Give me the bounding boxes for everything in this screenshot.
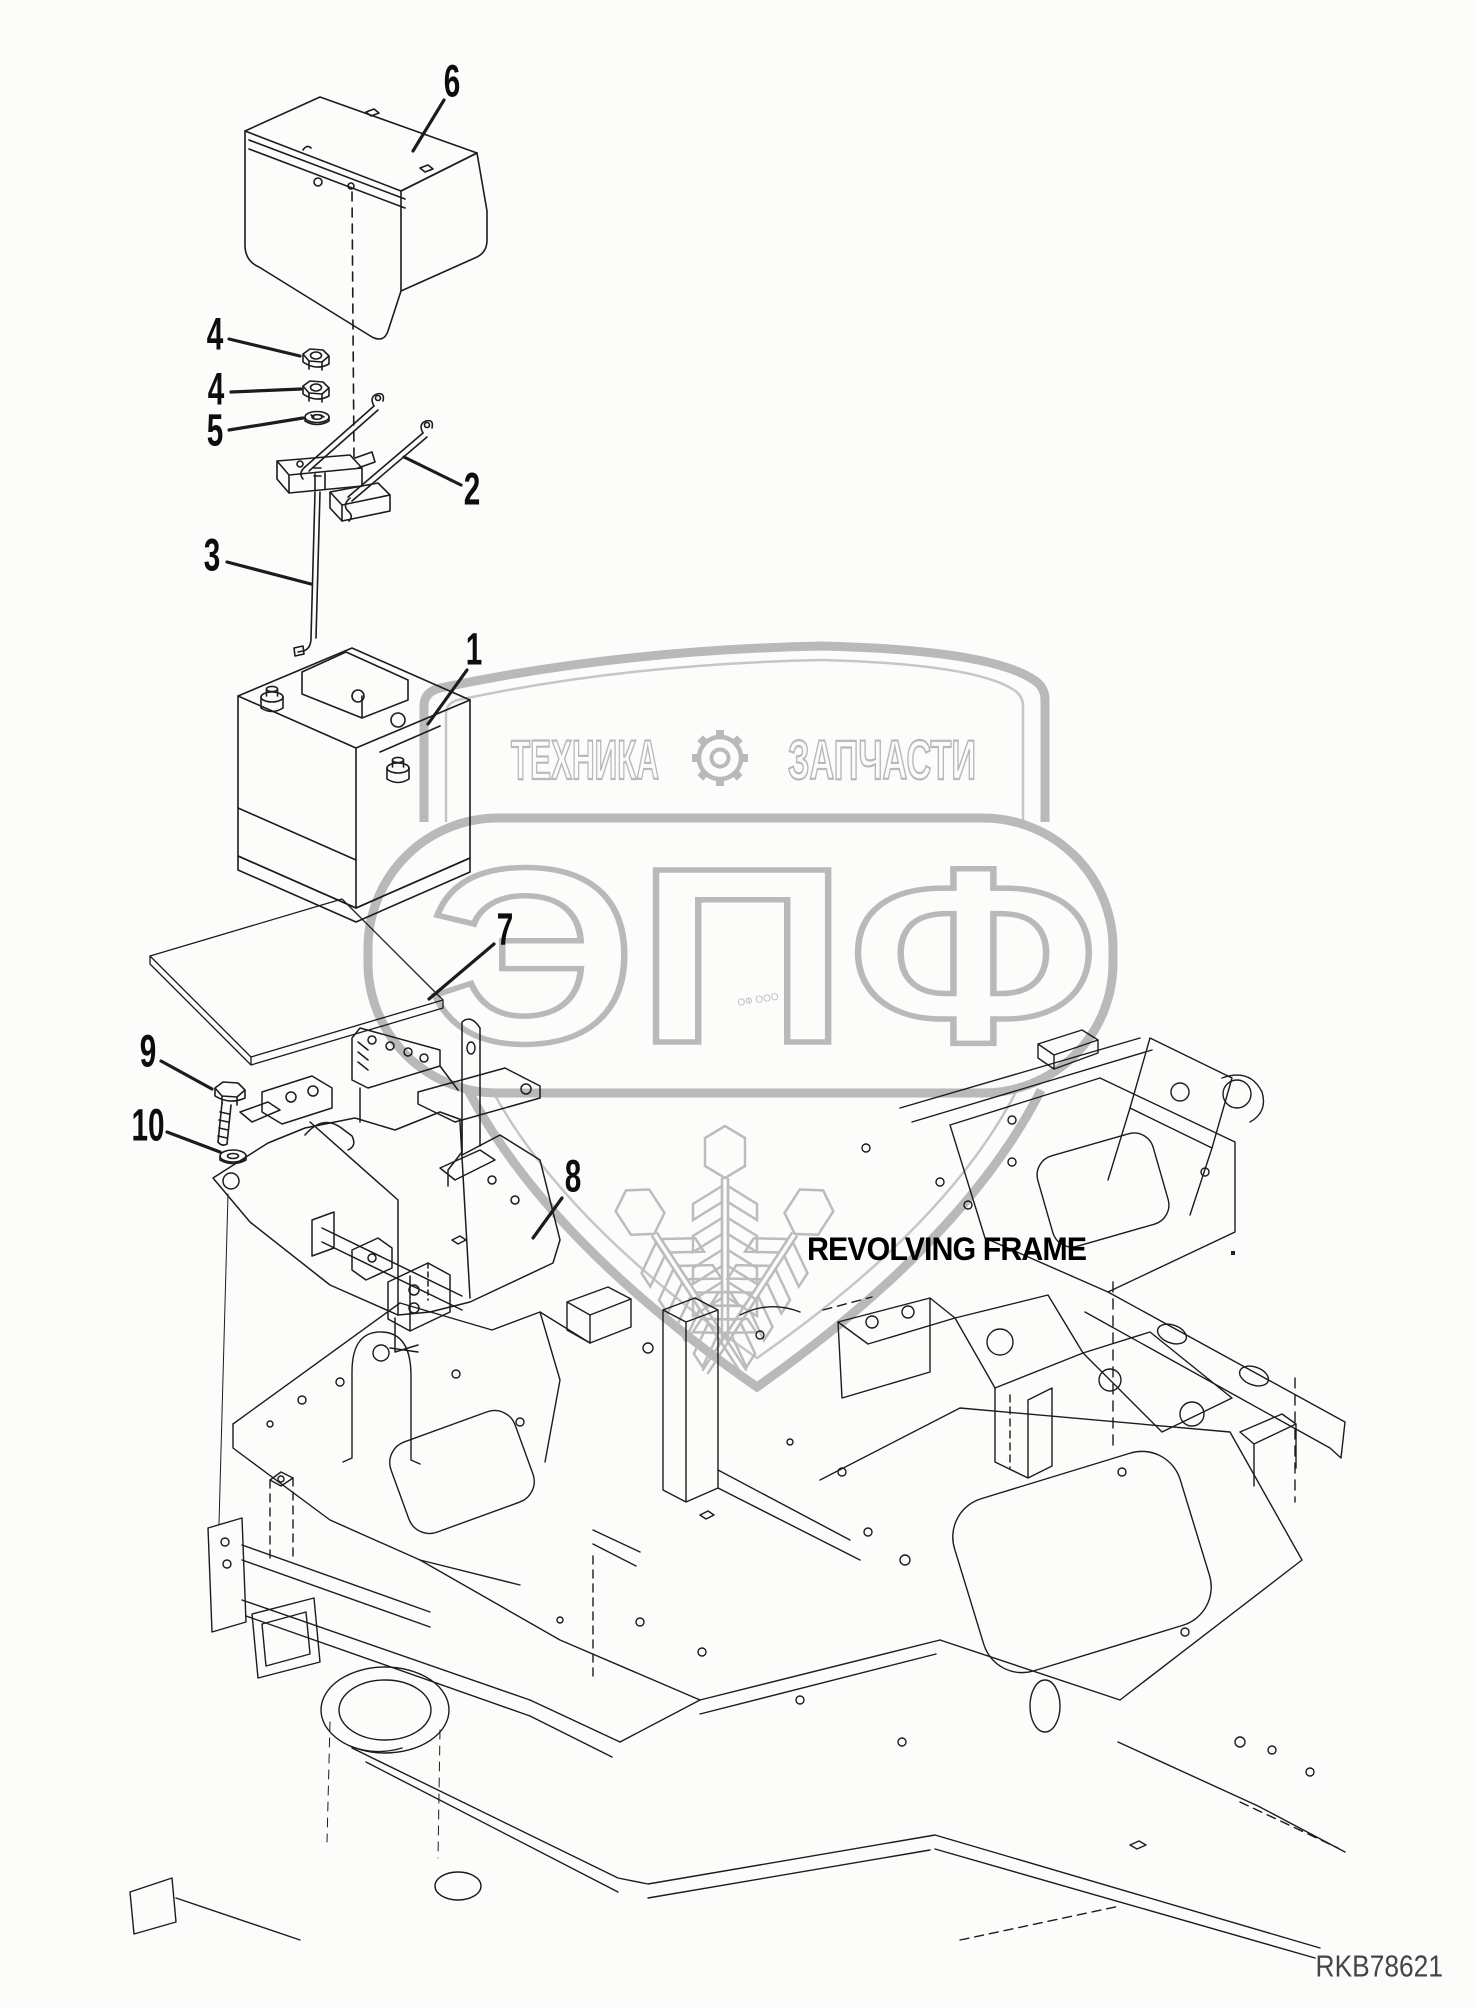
alignment-line bbox=[219, 1194, 228, 1524]
rod-part-3 bbox=[294, 468, 321, 656]
callout-label-4: 4 bbox=[207, 312, 224, 357]
nuts-and-washer-parts-4-5 bbox=[303, 349, 329, 425]
callout-label-7: 7 bbox=[497, 907, 514, 952]
parts-diagram-page: ТЕХНИКА ЗАПЧАСТИ ЭПФ ОФ ООО bbox=[0, 0, 1477, 2008]
bolt-part-9 bbox=[215, 1082, 245, 1145]
callout-label-10: 10 bbox=[131, 1103, 164, 1148]
diagram-layer bbox=[0, 0, 1477, 2008]
revolving-frame-drawing bbox=[130, 1030, 1345, 1958]
callout-leader-lines bbox=[161, 100, 562, 1238]
battery-part-1 bbox=[238, 648, 470, 922]
callout-label-5: 5 bbox=[207, 408, 224, 453]
washer-part-10 bbox=[220, 1150, 246, 1164]
drawing-code: RKB78621 bbox=[1316, 1951, 1443, 1982]
callout-label-1: 1 bbox=[466, 627, 483, 672]
holddown-clamp-part-2 bbox=[277, 394, 432, 521]
stray-dot bbox=[1231, 1251, 1235, 1255]
revolving-frame-caption: REVOLVING FRAME bbox=[807, 1233, 1086, 1265]
callout-label-3: 3 bbox=[204, 533, 221, 578]
battery-pad-part-7 bbox=[150, 899, 443, 1065]
callout-label-9: 9 bbox=[140, 1029, 157, 1074]
battery-cover-part-6 bbox=[245, 97, 487, 458]
callout-label-6: 6 bbox=[444, 59, 461, 104]
battery-tray-part-8 bbox=[213, 1019, 560, 1352]
callout-label-2: 2 bbox=[464, 467, 481, 512]
callout-label-8: 8 bbox=[565, 1154, 582, 1199]
